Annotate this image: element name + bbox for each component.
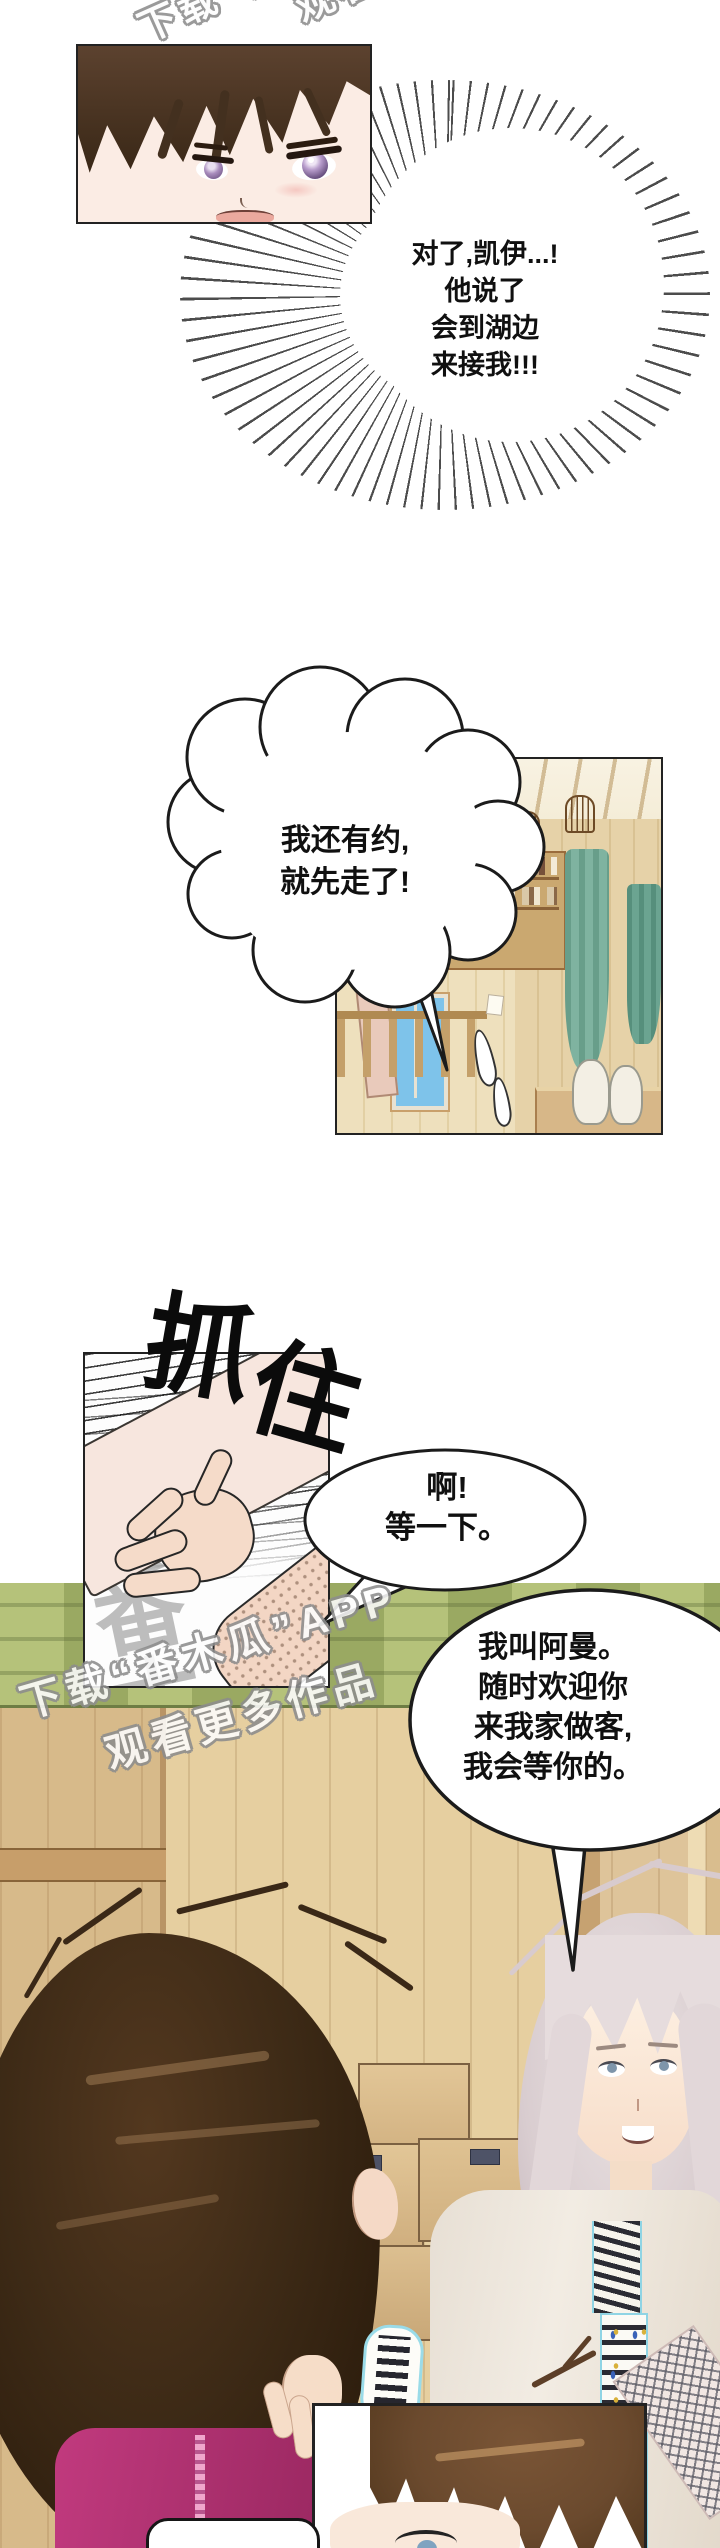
shout-bubble-text: 啊! 等一下。	[372, 1468, 522, 1548]
bubble-line: 对了,凯伊...!	[360, 236, 610, 273]
smiling-mouth	[622, 2126, 654, 2144]
bubble-line: 等一下。	[372, 1508, 522, 1548]
curtain-teal	[565, 849, 609, 1069]
nose-line	[637, 2099, 639, 2111]
burst-bubble-text: 对了,凯伊...! 他说了 会到湖边 来接我!!!	[360, 236, 610, 384]
collar-embroidery	[592, 2221, 642, 2313]
bubble-line: 啊!	[372, 1468, 522, 1508]
bubble-line: 随时欢迎你	[438, 1668, 668, 1708]
iris-right	[659, 2061, 669, 2071]
cloud-bubble-text: 我还有约, 就先走了!	[240, 820, 450, 904]
lips	[216, 210, 274, 224]
bubble-line: 我会等你的。	[438, 1748, 668, 1788]
nose-line	[240, 198, 252, 208]
watermark-top-line2: 观看更多作品	[285, 0, 543, 32]
bubble-line: 来接我!!!	[360, 347, 610, 384]
bubble-line: 来我家做客,	[438, 1708, 668, 1748]
birdcage	[565, 795, 595, 833]
mini-bubble-peek	[146, 2518, 320, 2548]
cheek-blush	[274, 182, 318, 198]
bubble-line: 我叫阿曼。	[438, 1628, 668, 1668]
bubble-line: 我还有约,	[240, 820, 450, 862]
bubble-line: 就先走了!	[240, 862, 450, 904]
bottom-inset-panel	[312, 2403, 647, 2548]
eye-sparkle	[308, 157, 314, 163]
bubble-line: 会到湖边	[360, 310, 610, 347]
bubble-line: 他说了	[360, 273, 610, 310]
iris-left	[607, 2063, 617, 2073]
curtain-teal	[627, 884, 661, 1044]
comic-page: 对了,凯伊...! 他说了 会到湖边 来接我!!!	[0, 0, 720, 2548]
intro-bubble-text: 我叫阿曼。 随时欢迎你 来我家做客, 我会等你的。	[438, 1628, 668, 1788]
sack	[609, 1065, 643, 1125]
eyebrow	[194, 142, 228, 151]
sack	[572, 1059, 610, 1125]
face-closeup-panel	[76, 44, 372, 224]
sfx-grab-char-1: 抓	[136, 1287, 261, 1412]
